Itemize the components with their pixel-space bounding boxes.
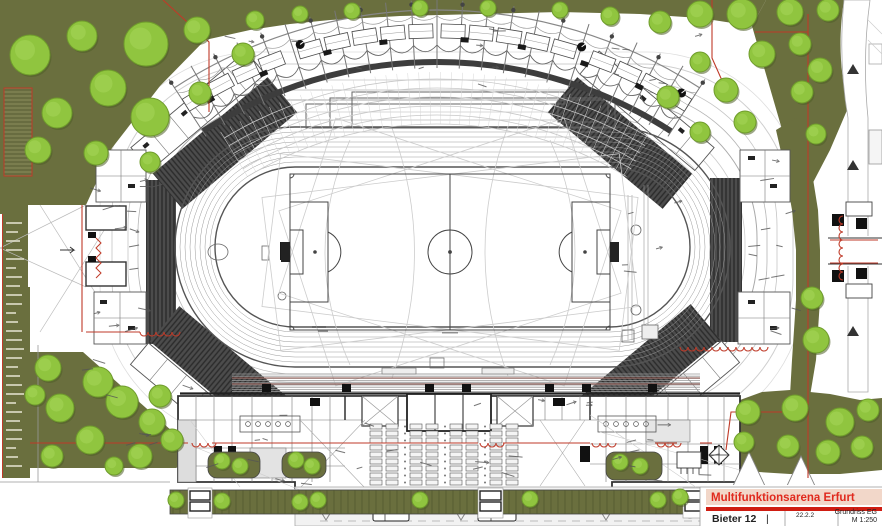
project-title: Multifunktionsarena Erfurt bbox=[711, 492, 855, 504]
east-stand bbox=[710, 178, 742, 342]
title-block: Multifunktionsarena Erfurt Bieter 12 | 2… bbox=[700, 485, 882, 526]
site-plan-page: Multifunktionsarena Erfurt Bieter 12 | 2… bbox=[0, 0, 882, 526]
parking-block-left bbox=[4, 88, 32, 176]
site-plan-svg: Multifunktionsarena Erfurt Bieter 12 | 2… bbox=[0, 0, 882, 526]
date-code: 22.2.2 bbox=[796, 512, 814, 519]
scale-label: M 1:250 bbox=[852, 517, 877, 524]
bidder-label: Bieter 12 bbox=[712, 513, 757, 525]
title-separator: | bbox=[766, 513, 769, 525]
drawing-name: Grundriss EG bbox=[835, 509, 877, 516]
